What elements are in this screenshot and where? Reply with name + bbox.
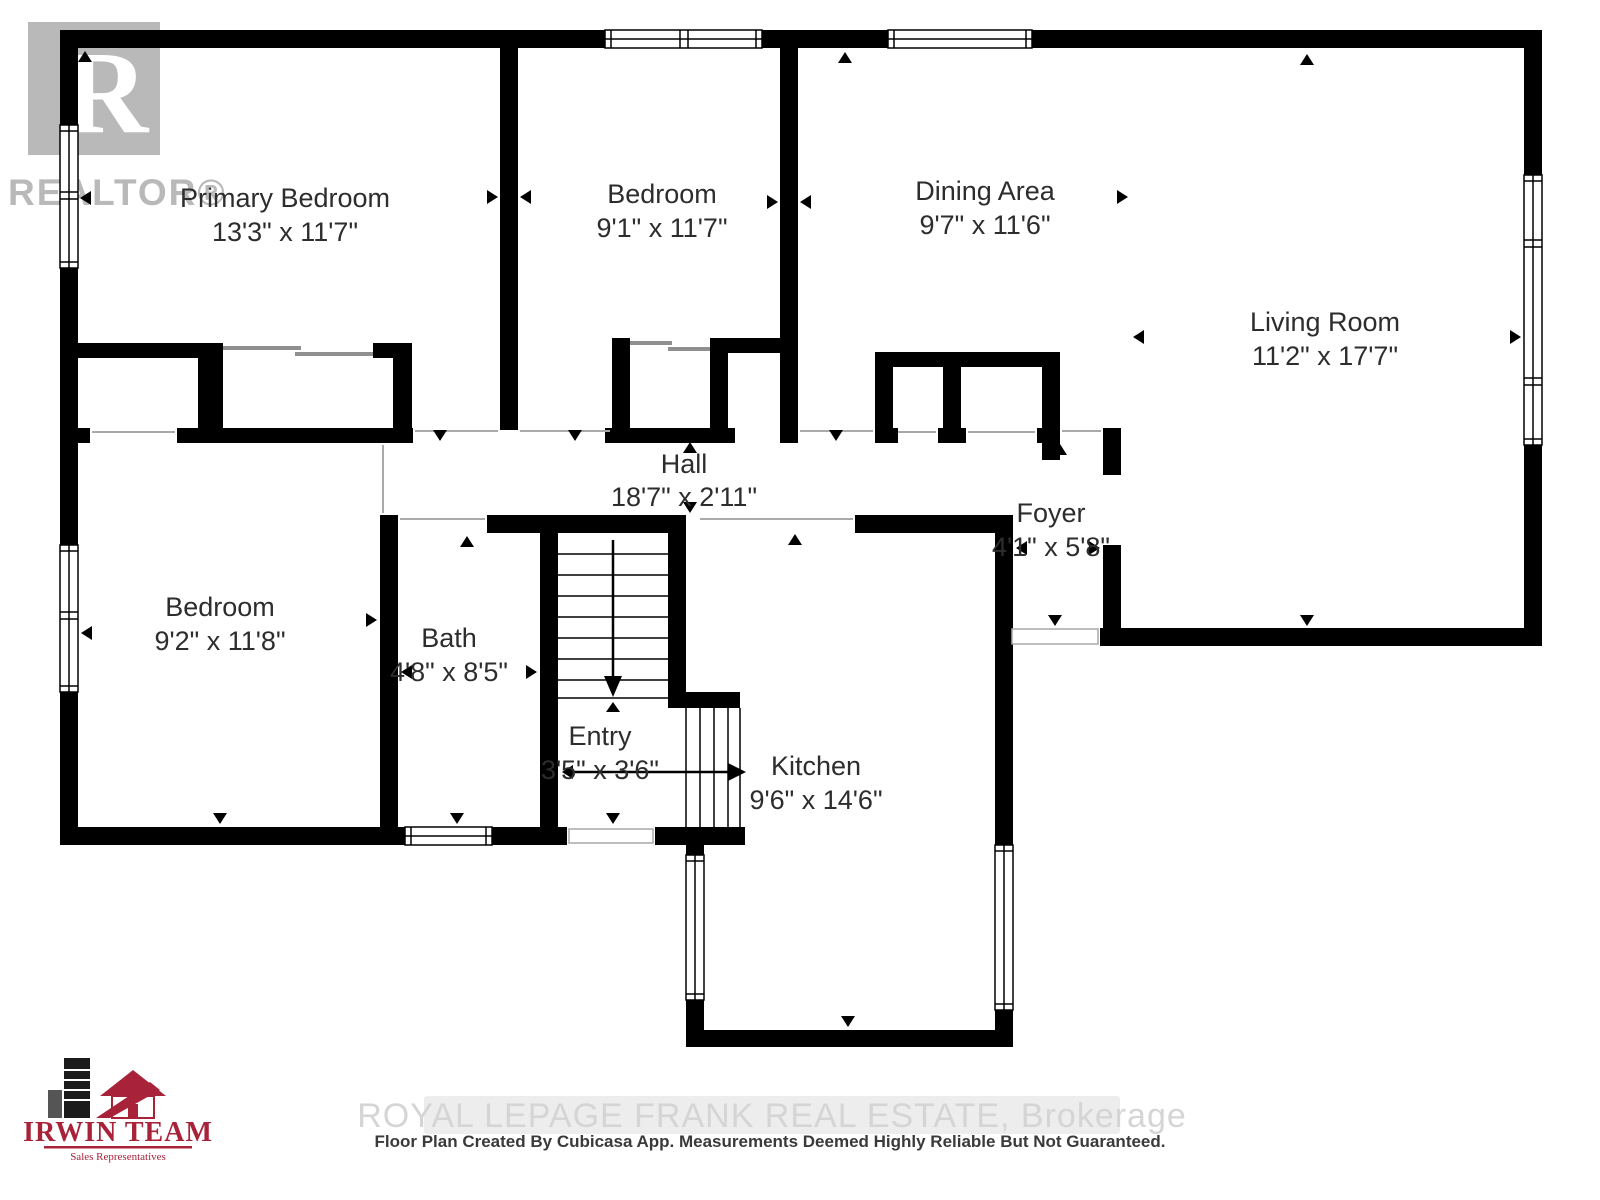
dimension-arrow — [460, 536, 474, 547]
room-name: Entry — [568, 721, 632, 751]
dimension-arrow — [838, 52, 852, 63]
room-label-bedroom-lower: Bedroom 9'2" x 11'8" — [154, 592, 285, 656]
stairs-right-arrowhead — [728, 763, 746, 781]
dimension-arrow — [487, 190, 498, 204]
sliding-door — [668, 347, 710, 351]
dimension-arrow — [1117, 190, 1128, 204]
irwin-building-tower — [64, 1058, 90, 1118]
dimension-arrow — [800, 195, 811, 209]
window-living-room — [1524, 175, 1542, 445]
dimension-arrow — [213, 813, 227, 824]
window-lower-bedroom — [60, 545, 78, 692]
irwin-subtitle: Sales Representatives — [70, 1151, 166, 1163]
room-dims: 9'7" x 11'6" — [919, 210, 1050, 240]
stairs-down-arrowhead — [604, 676, 622, 697]
irwin-team-logo: IRWIN TEAM Sales Representatives — [23, 1058, 213, 1163]
dimension-arrow — [366, 613, 377, 627]
floor-plan-svg: R REALTOR® — [0, 0, 1600, 1200]
brokerage-watermark: ROYAL LEPAGE FRANK REAL ESTATE, Brokerag… — [357, 1097, 1187, 1135]
dimension-arrow — [1048, 615, 1062, 626]
dimension-arrow — [788, 534, 802, 545]
room-dims: 9'1" x 11'7" — [596, 213, 727, 243]
sliding-door — [295, 352, 373, 356]
room-name: Primary Bedroom — [180, 183, 390, 213]
dimension-arrow — [526, 665, 537, 679]
room-name: Bath — [421, 623, 477, 653]
room-name: Hall — [661, 449, 708, 479]
window-top-bedroom — [605, 30, 762, 48]
room-dims: 4'8" x 8'5" — [390, 657, 508, 687]
dimension-arrow — [81, 626, 92, 640]
room-name: Bedroom — [607, 179, 717, 209]
floor-plan-disclaimer: Floor Plan Created By Cubicasa App. Meas… — [375, 1132, 1166, 1151]
room-dims: 11'2" x 17'7" — [1252, 341, 1398, 371]
dimension-arrow — [520, 190, 531, 204]
room-label-kitchen: Kitchen 9'6" x 14'6" — [749, 751, 882, 815]
front-door-entry — [569, 829, 653, 843]
dimension-arrow — [767, 195, 778, 209]
room-label-entry: Entry 3'5" x 3'6" — [541, 721, 659, 785]
room-dims: 13'3" x 11'7" — [212, 217, 358, 247]
window-kitchen-right — [995, 845, 1013, 1010]
dimension-arrow — [1300, 615, 1314, 626]
room-dims: 3'5" x 3'6" — [541, 755, 659, 785]
sliding-door — [223, 346, 301, 350]
room-label-dining-area: Dining Area 9'7" x 11'6" — [915, 176, 1056, 240]
room-name: Kitchen — [771, 751, 861, 781]
room-name: Living Room — [1250, 307, 1400, 337]
room-dims: 9'6" x 14'6" — [749, 785, 882, 815]
floor-plan-page: R REALTOR® — [0, 0, 1600, 1200]
window-primary-bedroom — [60, 125, 78, 268]
room-dims: 9'2" x 11'8" — [154, 626, 285, 656]
dimension-arrow — [606, 813, 620, 824]
irwin-title: IRWIN TEAM — [23, 1117, 213, 1148]
dimension-arrow — [829, 430, 843, 441]
dimension-arrow — [606, 702, 620, 712]
room-dims: 18'7" x 2'11" — [611, 482, 757, 512]
dimension-arrow — [1510, 330, 1521, 344]
footer: ROYAL LEPAGE FRANK REAL ESTATE, Brokerag… — [357, 1096, 1187, 1151]
window-kitchen-left — [686, 855, 704, 1000]
window-top-dining — [888, 30, 1032, 48]
room-labels: Primary Bedroom 13'3" x 11'7" Bedroom 9'… — [154, 176, 1400, 815]
room-name: Dining Area — [915, 176, 1056, 206]
dimension-arrow — [568, 430, 582, 441]
window-bath — [405, 827, 492, 845]
room-label-bedroom-top: Bedroom 9'1" x 11'7" — [596, 179, 727, 243]
front-door-foyer — [1012, 629, 1098, 644]
dimension-arrow — [450, 813, 464, 824]
irwin-building-small — [48, 1090, 62, 1118]
room-name: Bedroom — [165, 592, 275, 622]
room-label-hall: Hall 18'7" x 2'11" — [611, 449, 757, 512]
room-label-primary-bedroom: Primary Bedroom 13'3" x 11'7" — [180, 183, 390, 247]
dimension-arrow — [433, 430, 447, 441]
room-dims: 4'1" x 5'8" — [992, 532, 1110, 562]
irwin-underline — [44, 1146, 192, 1149]
dimension-arrow — [841, 1016, 855, 1027]
room-label-bath: Bath 4'8" x 8'5" — [390, 623, 508, 687]
sliding-door — [630, 341, 672, 345]
dimension-arrow — [1300, 54, 1314, 65]
dimension-arrow — [1133, 330, 1144, 344]
room-label-living-room: Living Room 11'2" x 17'7" — [1250, 307, 1400, 371]
room-name: Foyer — [1016, 498, 1085, 528]
